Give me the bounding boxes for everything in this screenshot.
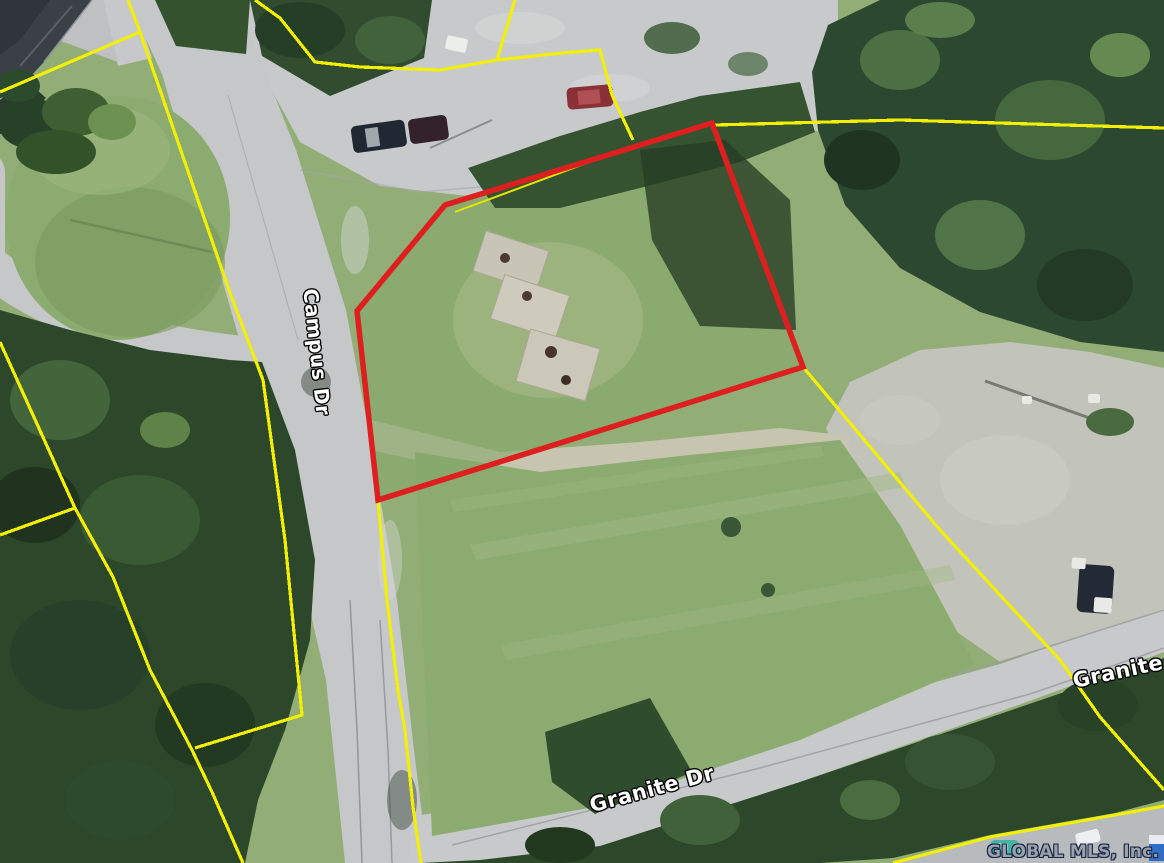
field-bush	[721, 517, 741, 537]
white-debris	[1088, 394, 1100, 403]
bush-gravel	[1086, 408, 1134, 436]
lawn-shading	[35, 187, 225, 337]
car-roof	[577, 89, 600, 105]
tree-canopy-blob	[525, 827, 595, 863]
tree-canopy-blob	[65, 760, 175, 840]
aerial-photo	[0, 0, 1164, 863]
tree-canopy-blob	[935, 200, 1025, 270]
aerial-map: Campus Dr Granite Dr Granite D GLOBAL ML…	[0, 0, 1164, 863]
pad-debris	[522, 291, 532, 301]
tree-canopy-blob	[995, 80, 1105, 160]
white-debris	[1022, 396, 1032, 404]
bush-on-road	[644, 22, 700, 54]
tree-canopy-blob	[860, 30, 940, 90]
pad-debris	[561, 375, 571, 385]
tree-canopy-blob	[1037, 249, 1133, 321]
tree-canopy-blob	[905, 2, 975, 38]
tree-canopy-blob	[660, 795, 740, 845]
pad-debris	[500, 253, 510, 263]
watermark-global-mls: GLOBAL MLS, Inc.	[987, 842, 1159, 862]
road-wear	[475, 12, 565, 44]
white-debris	[1093, 597, 1112, 613]
road-wear	[341, 206, 369, 274]
field-bush	[761, 583, 775, 597]
tree-canopy-blob	[140, 412, 190, 448]
tree-canopy-blob	[840, 780, 900, 820]
tree-canopy-blob	[155, 683, 255, 767]
vehicle-red-car	[566, 84, 614, 110]
road-wear	[940, 435, 1070, 525]
tree-canopy-blob	[905, 734, 995, 790]
road-wear	[860, 395, 940, 445]
bush	[16, 130, 96, 174]
windshield	[365, 127, 381, 148]
pad-debris	[545, 346, 557, 358]
white-debris	[1071, 557, 1086, 569]
bush-on-road	[728, 52, 768, 76]
tree-canopy-blob	[824, 130, 900, 190]
tree-canopy-blob	[355, 16, 425, 64]
bush	[88, 104, 136, 140]
tree-canopy-blob	[1090, 33, 1150, 77]
